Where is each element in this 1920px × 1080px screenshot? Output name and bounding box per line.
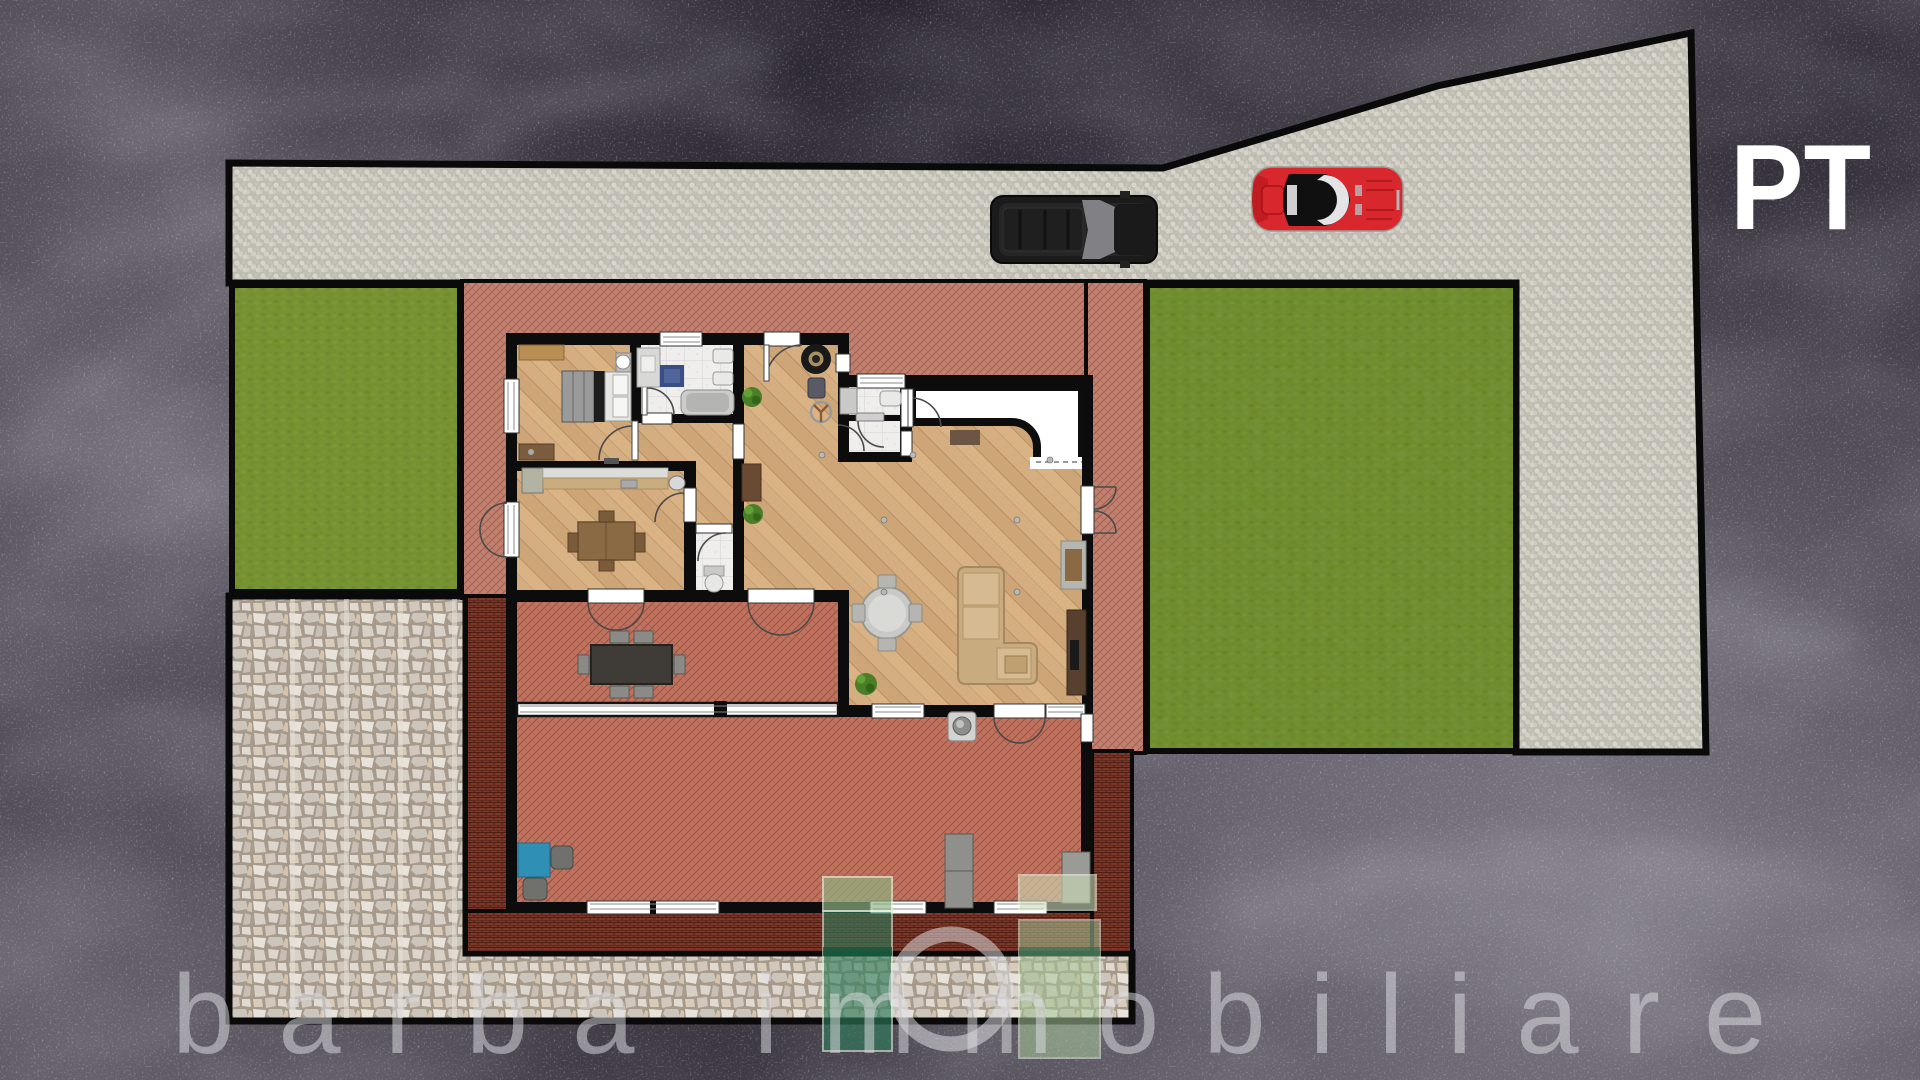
svg-text:barba immobiliare: barba immobiliare	[172, 952, 1810, 1077]
svg-text:PT: PT	[1730, 119, 1871, 255]
